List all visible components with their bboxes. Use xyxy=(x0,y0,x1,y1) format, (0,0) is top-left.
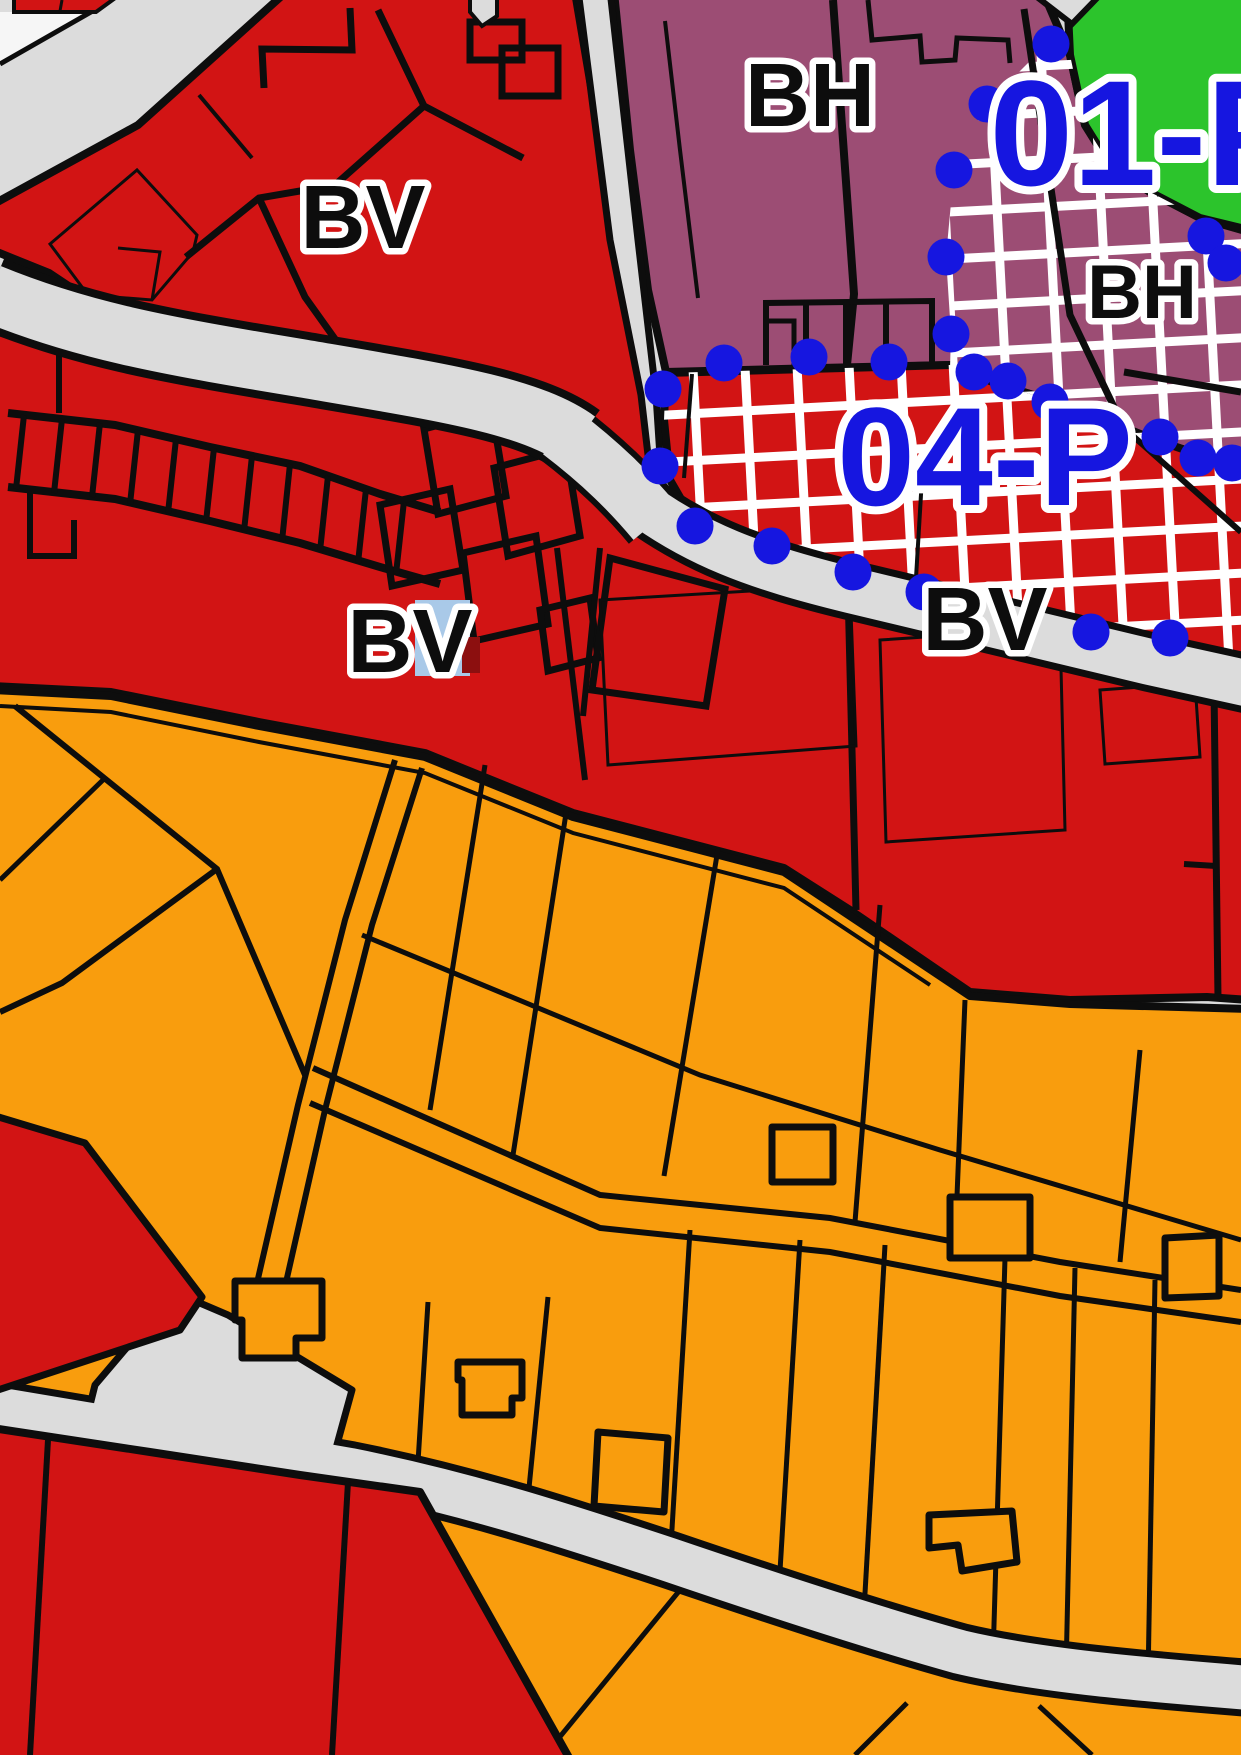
svg-text:BV: BV xyxy=(922,570,1047,670)
svg-text:BV: BV xyxy=(300,168,425,268)
svg-text:BV: BV xyxy=(347,592,472,692)
svg-text:04-P: 04-P xyxy=(837,378,1133,535)
svg-text:BH: BH xyxy=(745,46,875,146)
svg-text:BH: BH xyxy=(1087,250,1197,335)
svg-text:01-P: 01-P xyxy=(990,49,1241,217)
